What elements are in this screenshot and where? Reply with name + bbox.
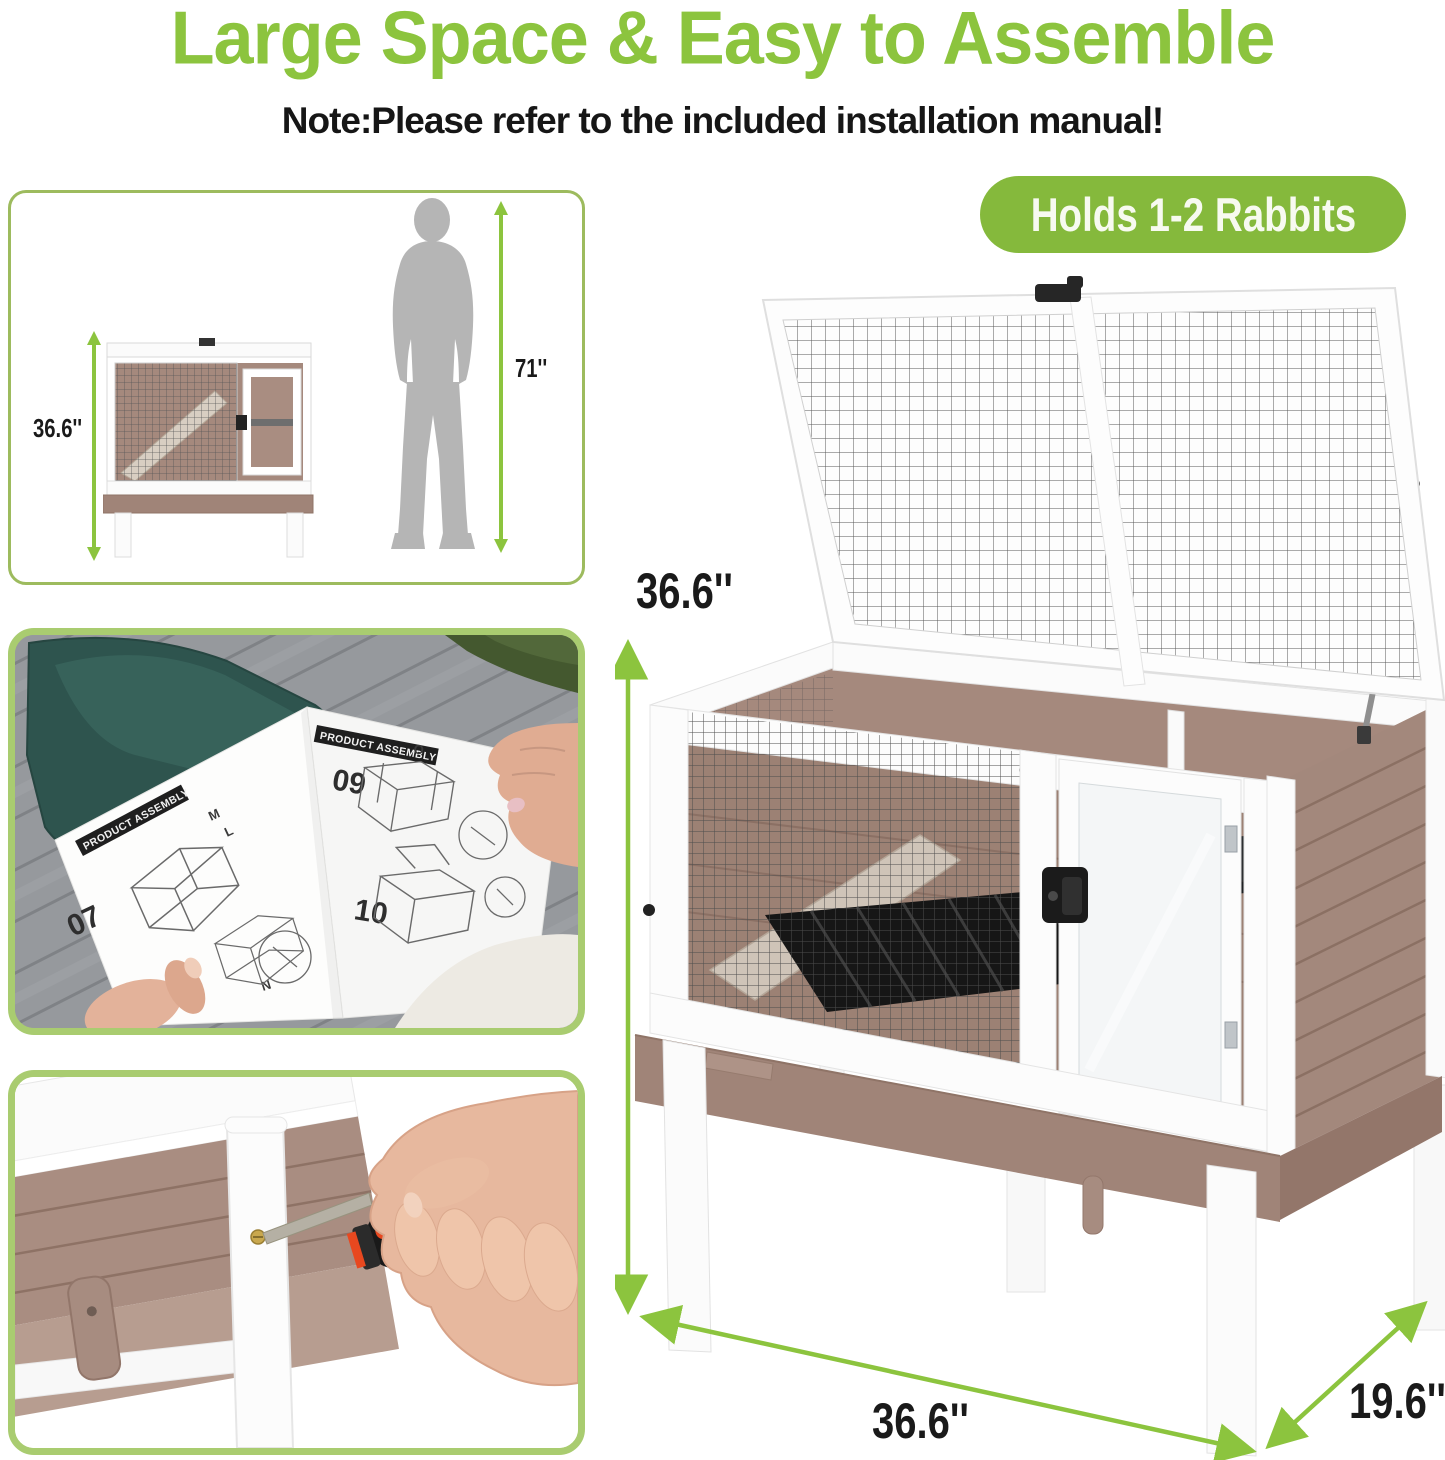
hutch-height-label: 36.6'': [33, 413, 82, 444]
latch-icon: [236, 415, 247, 430]
latch-icon: [199, 338, 215, 346]
side-latch-icon: [643, 904, 655, 916]
lid-latch-icon: [1035, 276, 1083, 302]
hutch-height-arrow-icon: [83, 331, 105, 561]
person-height-label: 71'': [515, 353, 547, 384]
wood-latch-tab: [1083, 1176, 1103, 1234]
depth-dimension-label: 19.6'': [1349, 1372, 1445, 1430]
assembly-photo: [8, 1070, 585, 1455]
person-height-arrow-icon: [490, 201, 512, 553]
door-latch-icon: [1042, 867, 1088, 923]
size-comparison-panel: 36.6'' 71'': [8, 190, 585, 585]
capacity-badge-label: Holds 1-2 Rabbits: [1030, 187, 1356, 242]
manual-photo: PRODUCT ASSEMBLY PRODUCT ASSEMBLY 07 08 …: [8, 628, 585, 1035]
corner-post: [225, 1117, 293, 1448]
width-dimension-label: 36.6'': [872, 1392, 969, 1450]
page-title: Large Space & Easy to Assemble: [0, 0, 1445, 81]
height-dimension-label: 36.6'': [636, 562, 733, 620]
capacity-badge: Holds 1-2 Rabbits: [980, 176, 1406, 253]
person-silhouette: [369, 197, 499, 557]
hinge-icon: [1225, 826, 1237, 852]
note-text: Note:Please refer to the included instal…: [0, 100, 1445, 142]
hutch-main-illustration: [615, 270, 1445, 1460]
hinge-icon: [1225, 1022, 1237, 1048]
product-infographic: Large Space & Easy to Assemble Note:Plea…: [0, 0, 1445, 1460]
wire-lid: [763, 276, 1444, 700]
screw-icon: [251, 1230, 265, 1244]
hutch-thumbnail-illustration: [103, 333, 315, 561]
